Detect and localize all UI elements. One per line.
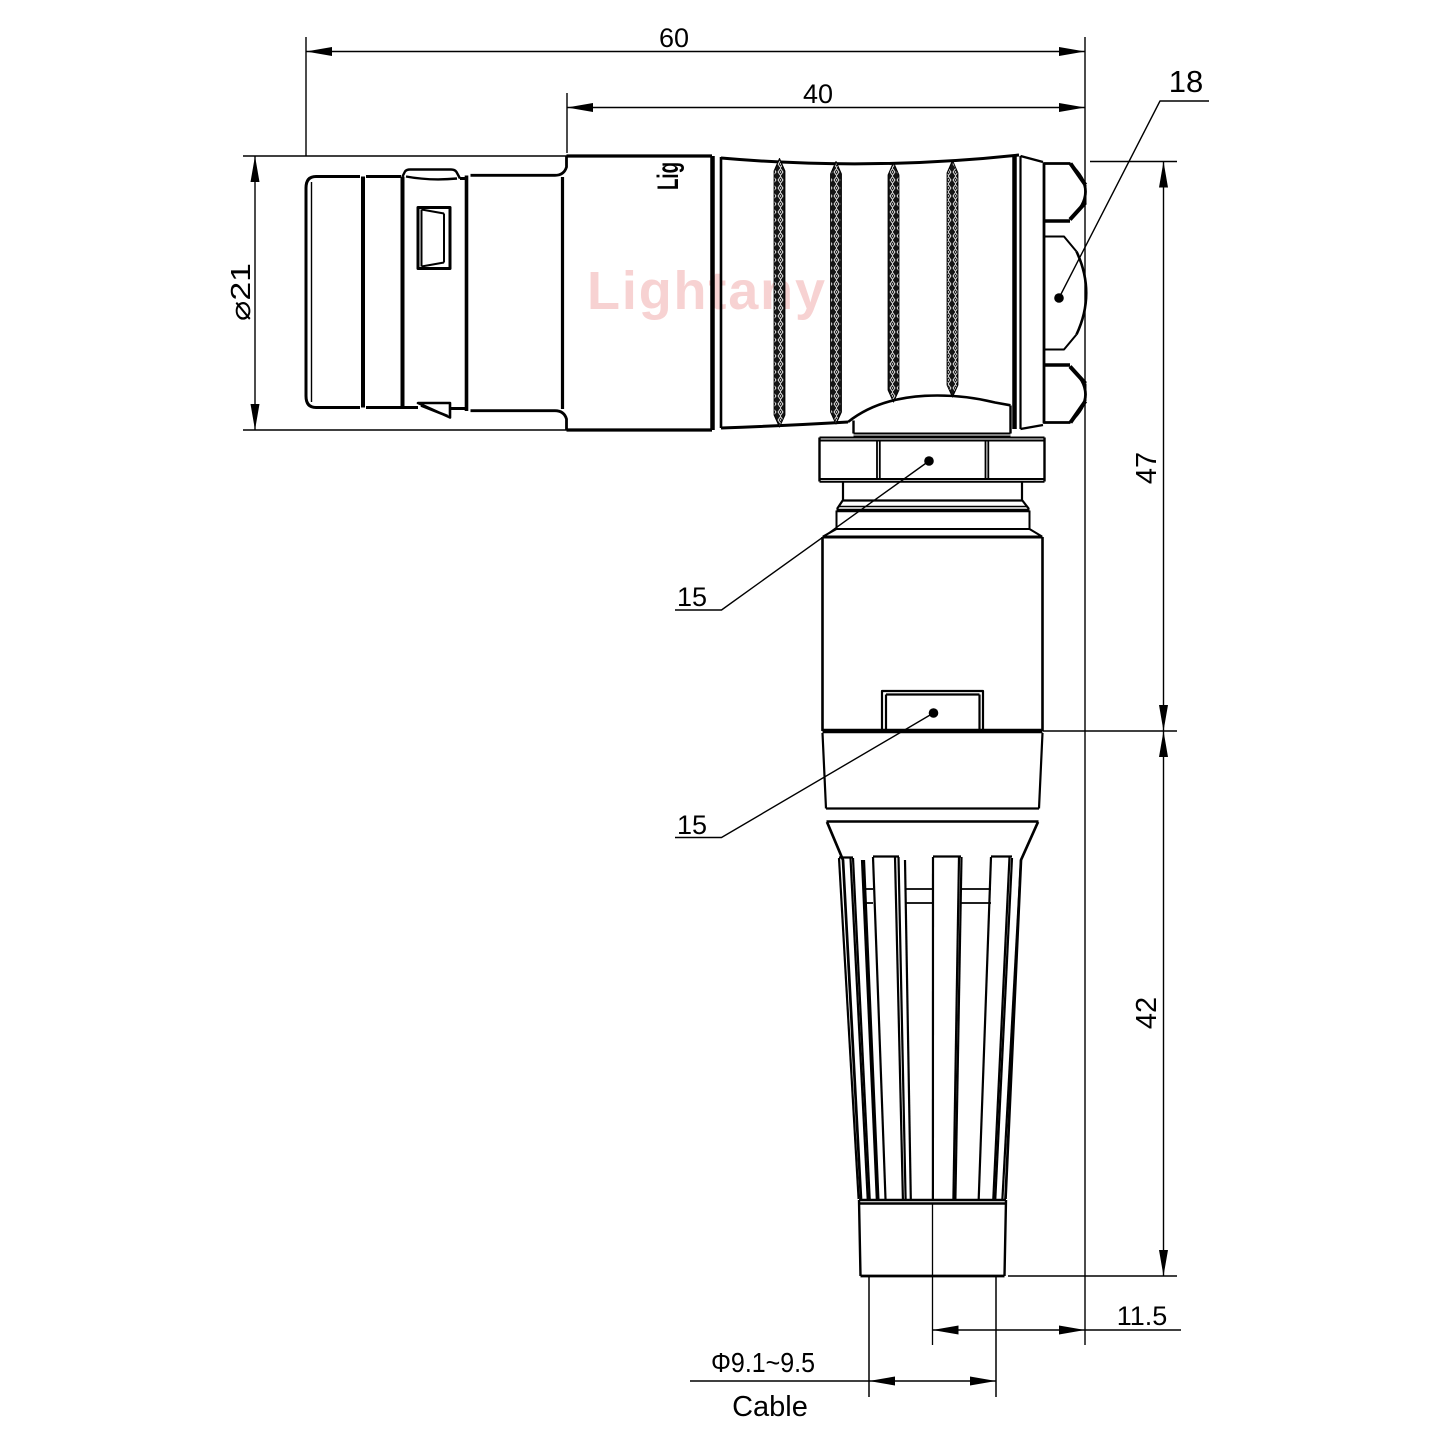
svg-text:Lightany: Lightany	[587, 261, 825, 321]
svg-text:18: 18	[1169, 64, 1203, 99]
svg-text:42: 42	[1131, 997, 1163, 1029]
svg-text:Cable: Cable	[732, 1391, 808, 1423]
svg-text:Lig: Lig	[652, 162, 685, 190]
svg-text:47: 47	[1131, 452, 1163, 484]
svg-text:15: 15	[677, 810, 707, 840]
svg-text:Φ9.1~9.5: Φ9.1~9.5	[711, 1347, 815, 1378]
svg-text:⌀21: ⌀21	[225, 263, 256, 321]
svg-text:60: 60	[659, 23, 689, 53]
svg-text:40: 40	[803, 79, 833, 109]
svg-text:15: 15	[677, 582, 707, 612]
svg-text:11.5: 11.5	[1117, 1301, 1168, 1331]
